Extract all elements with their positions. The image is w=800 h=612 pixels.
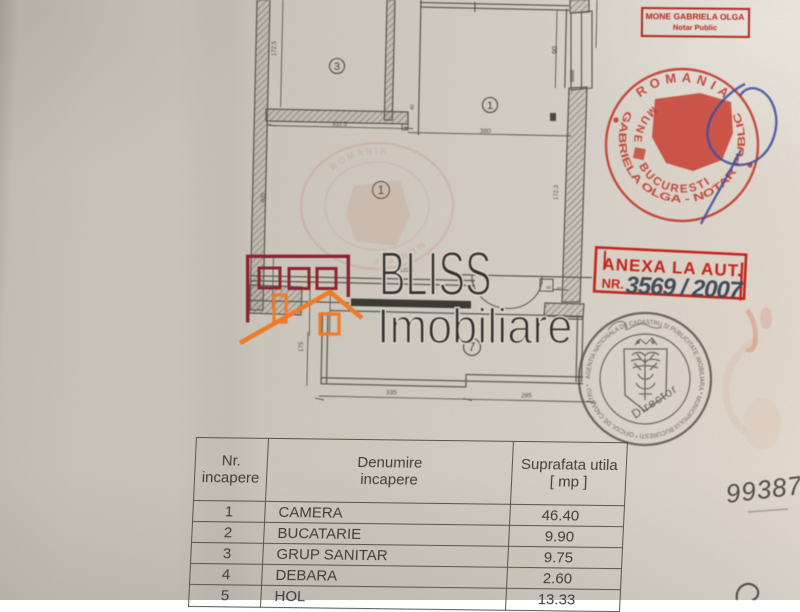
svg-text:Notar Public: Notar Public [673,23,717,32]
svg-text:Director: Director [629,382,680,422]
svg-text:3569 / 2007: 3569 / 2007 [625,272,745,305]
svg-text:MONE GABRIELA OLGA: MONE GABRIELA OLGA [646,11,745,22]
svg-text:NR.: NR. [601,276,624,292]
svg-text:993870/: 993870/ [724,467,800,509]
